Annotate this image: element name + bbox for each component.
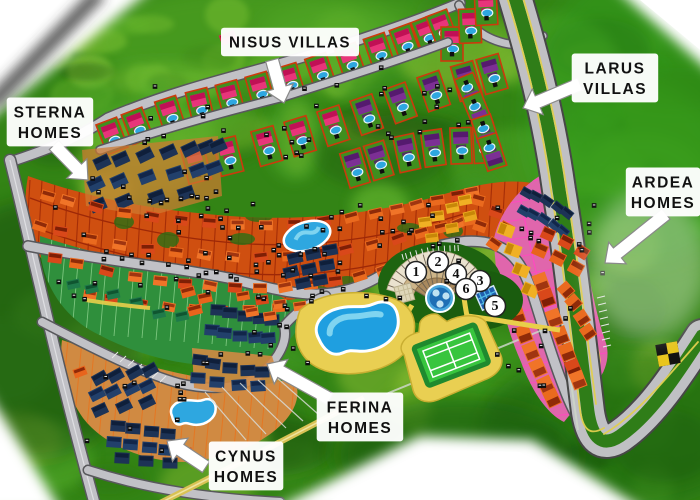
svg-text:4: 4	[453, 267, 460, 282]
svg-text:HOMES: HOMES	[631, 195, 695, 212]
svg-text:1: 1	[413, 265, 420, 280]
svg-text:2: 2	[435, 255, 442, 270]
svg-text:ARDEA: ARDEA	[632, 175, 695, 192]
svg-text:STERNA: STERNA	[14, 105, 87, 122]
svg-text:5: 5	[492, 299, 499, 314]
svg-text:LARUS: LARUS	[585, 61, 646, 78]
svg-text:6: 6	[463, 282, 470, 297]
svg-text:NISUS VILLAS: NISUS VILLAS	[229, 35, 351, 52]
svg-text:HOMES: HOMES	[328, 420, 392, 437]
svg-text:HOMES: HOMES	[214, 469, 278, 486]
svg-text:CYNUS: CYNUS	[215, 449, 277, 466]
svg-text:HOMES: HOMES	[18, 125, 82, 142]
svg-text:VILLAS: VILLAS	[583, 81, 647, 98]
svg-text:3: 3	[477, 274, 484, 289]
svg-text:FERINA: FERINA	[327, 400, 394, 417]
